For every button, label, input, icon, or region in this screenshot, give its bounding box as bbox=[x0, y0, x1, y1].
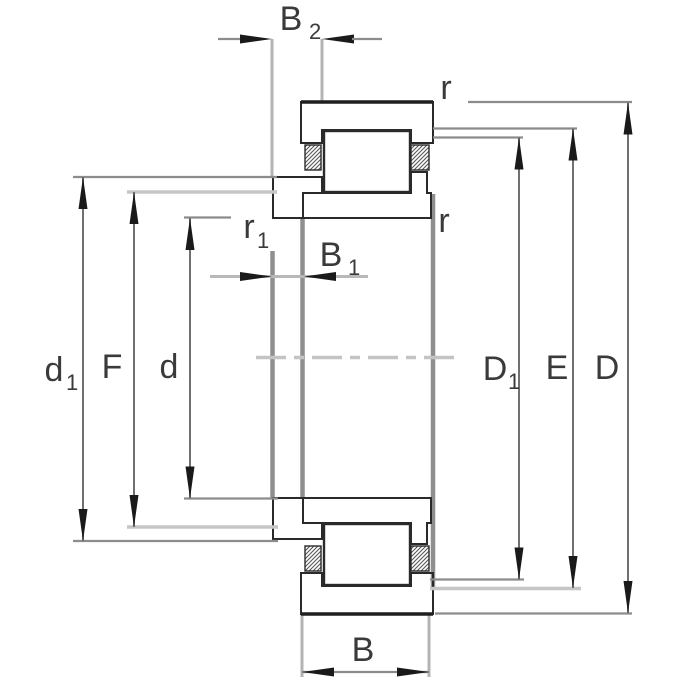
label-d1-sub: 1 bbox=[66, 370, 78, 395]
label-b2-main: B bbox=[280, 0, 303, 38]
e-down-arrow bbox=[569, 556, 578, 588]
dimension-E bbox=[569, 129, 578, 589]
label-b1-main: B bbox=[320, 236, 343, 274]
label-big-d1-main: D bbox=[483, 350, 508, 388]
bearing-dimension-drawing: B 2 r r r 1 B 1 d 1 F d D 1 E D B bbox=[0, 0, 680, 680]
cage-bottom-right bbox=[411, 546, 429, 571]
b1-right-pointing-arrow bbox=[240, 272, 272, 281]
d-down-arrow bbox=[186, 467, 195, 499]
b2-right-pointing-arrow bbox=[240, 35, 272, 44]
cage-bottom-left bbox=[305, 546, 321, 571]
dimension-D bbox=[624, 103, 633, 614]
cage-top-right bbox=[411, 145, 429, 170]
label-d1-main: d bbox=[45, 351, 64, 389]
label-r1-main: r bbox=[243, 208, 254, 246]
f-down-arrow bbox=[130, 495, 139, 527]
dimension-D1 bbox=[515, 138, 524, 580]
big-d-down-arrow bbox=[624, 581, 633, 613]
drawing-canvas: B 2 r r r 1 B 1 d 1 F d D 1 E D B bbox=[0, 0, 680, 680]
roller-bottom bbox=[324, 524, 410, 585]
label-r-mid-right: r bbox=[438, 202, 449, 240]
d-up-arrow bbox=[186, 218, 195, 250]
label-big-d1-sub: 1 bbox=[508, 369, 520, 394]
big-d1-up-arrow bbox=[515, 138, 524, 170]
b2-left-pointing-arrow bbox=[322, 35, 354, 44]
label-e: E bbox=[546, 349, 569, 387]
cage-top-left bbox=[305, 145, 321, 170]
d1-up-arrow bbox=[79, 177, 88, 209]
label-big-d: D bbox=[595, 349, 620, 387]
dimension-d1 bbox=[79, 177, 88, 541]
f-up-arrow bbox=[130, 192, 139, 224]
label-f: F bbox=[102, 348, 123, 386]
label-r1-sub: 1 bbox=[257, 228, 269, 253]
b-right-pointing-arrow bbox=[397, 668, 429, 677]
bearing-section-bottom bbox=[273, 498, 433, 614]
roller-top bbox=[324, 131, 410, 192]
angle-ring-bottom bbox=[273, 498, 322, 539]
label-b2-sub: 2 bbox=[309, 19, 321, 44]
dimension-d bbox=[186, 218, 195, 499]
b-left-pointing-arrow bbox=[302, 668, 334, 677]
dimension-B1 bbox=[210, 272, 368, 281]
d1-down-arrow bbox=[79, 509, 88, 541]
big-d-up-arrow bbox=[624, 103, 633, 135]
bearing-section-top bbox=[273, 102, 433, 218]
e-up-arrow bbox=[569, 129, 578, 161]
label-b1-sub: 1 bbox=[348, 255, 360, 280]
big-d1-down-arrow bbox=[515, 548, 524, 580]
label-d: d bbox=[160, 348, 179, 386]
dimension-F bbox=[130, 192, 139, 527]
label-r-top-right: r bbox=[440, 69, 451, 107]
label-b: B bbox=[352, 631, 375, 669]
angle-ring-top bbox=[273, 177, 322, 218]
